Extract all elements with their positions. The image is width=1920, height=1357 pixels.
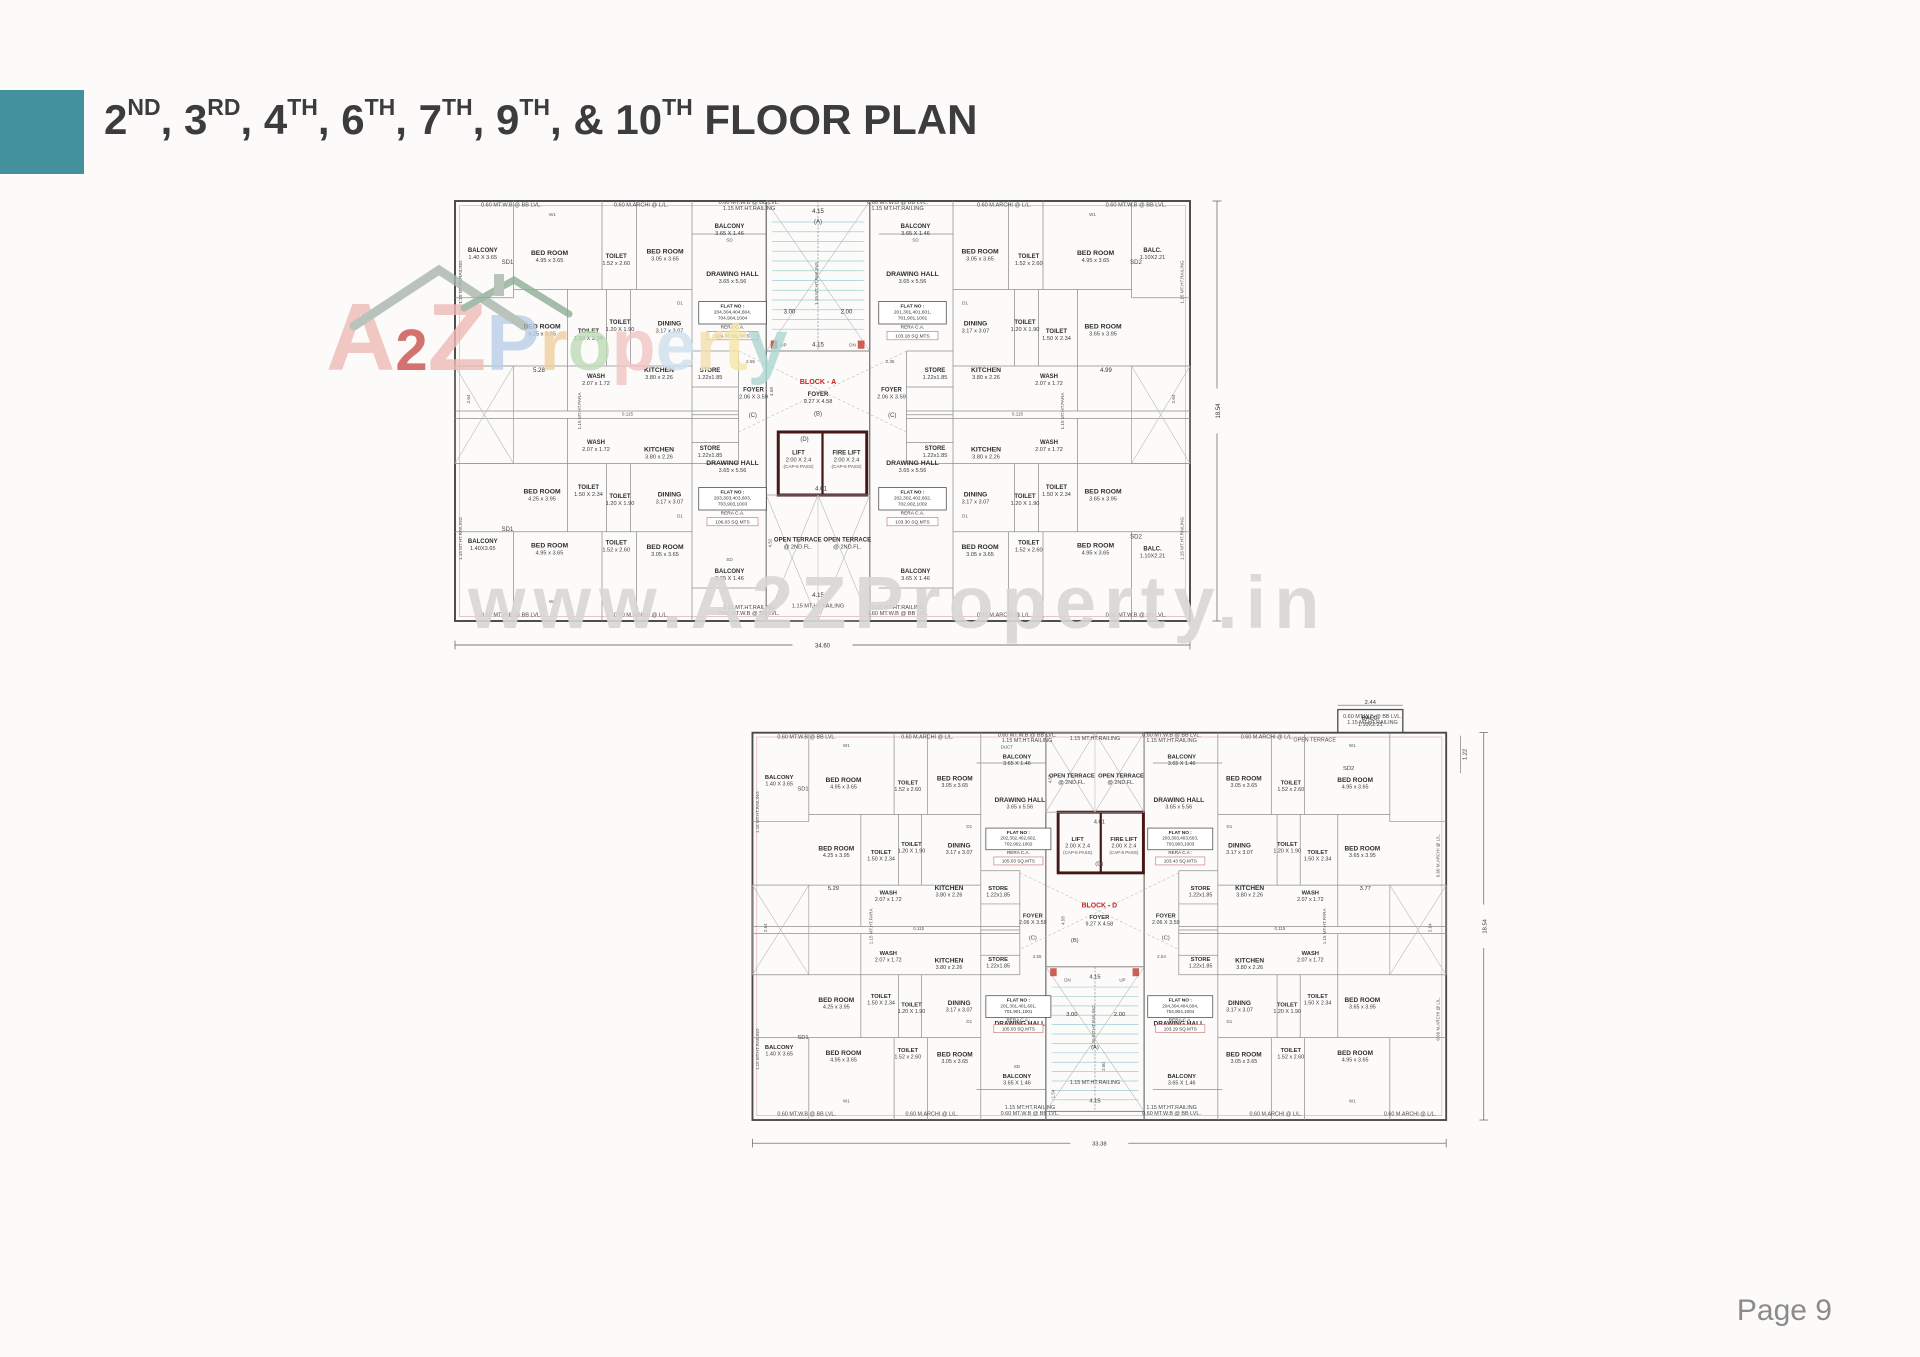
plan-label: 1.15 MT.HT.RAILING: [1091, 1005, 1096, 1047]
plan-label: 1.15 MT.HT.RAILING: [1002, 738, 1052, 744]
plan-label: 1.52 x 2.60: [1015, 547, 1043, 553]
plan-label: TOILET: [1277, 842, 1298, 848]
plan-label: 3.65 X 1.46: [901, 576, 930, 582]
plan-label: 1.50 X 2.34: [574, 336, 603, 342]
plan-label: 701,901,1001: [898, 316, 928, 322]
plan-label: 1.10X2.21: [1358, 722, 1383, 728]
plan-label: RERA C.A.: [901, 511, 925, 517]
plan-label: 3.05 x 3.65: [941, 783, 968, 789]
plan-label: 0.60 M.ARCHI @ L/L.: [977, 202, 1032, 208]
plan-label: 3.00: [784, 310, 796, 316]
plan-label: (C): [749, 413, 757, 419]
plan-label: FOYER: [743, 388, 764, 394]
plan-label: 1.52 x 2.60: [1277, 787, 1304, 793]
plan-label: FIRE LIFT: [1110, 837, 1137, 843]
plan-label: 2.07 x 1.72: [582, 447, 610, 453]
plan-label: DRAWING HALL: [886, 271, 939, 278]
plan-label: BALCONY: [765, 1045, 794, 1051]
plan-label: 3.80 x 2.26: [1236, 893, 1263, 899]
plan-label: 1.20 X 1.90: [898, 1009, 926, 1015]
flat-no-title: FLAT NO :: [900, 490, 924, 496]
plan-label: 3.17 x 3.07: [946, 850, 973, 856]
plan-label: 202,302,402,602,: [1000, 836, 1036, 841]
plan-label: 0.115: [1275, 926, 1286, 931]
plan-label: BALC.: [1143, 248, 1162, 254]
plan-label: 1.20 X 1.90: [898, 849, 926, 855]
plan-label: BALCONY: [1003, 755, 1032, 761]
watermark-letter: A: [326, 290, 395, 386]
plan-label: 3.05 x 3.65: [651, 256, 679, 262]
plan-label: 204,304,404,604,: [1162, 1003, 1198, 1008]
plan-label: BALCONY: [715, 224, 745, 230]
plan-label: TOILET: [1307, 850, 1328, 856]
plan-label: 3.65 x 5.56: [1006, 805, 1033, 811]
plan-label: DINING: [1228, 843, 1251, 850]
plan-label: (C): [1029, 935, 1037, 941]
plan-label: (A): [1091, 1045, 1099, 1051]
plan-label: 1.40X3.65: [470, 546, 496, 552]
plan-label: SD: [1014, 1064, 1021, 1069]
plan-label: BED ROOM: [1084, 489, 1122, 496]
plan-label: DRAWING HALL: [886, 460, 939, 467]
dim-right-top: 1.22: [1462, 749, 1468, 760]
plan-label: 4.95 x 3.65: [1082, 258, 1110, 264]
plan-label: 4.95 x 3.65: [1342, 784, 1369, 790]
plan-label: 4.25 x 3.95: [528, 331, 556, 337]
plan-label: 1.40 X 3.65: [765, 1052, 793, 1058]
plan-label: 1.15 MT.HT.RAILING: [458, 517, 463, 561]
plan-label: 1.52 x 2.60: [1277, 1055, 1304, 1061]
plan-label: DUCT: [1001, 745, 1014, 750]
plan-label: KITCHEN: [644, 367, 674, 374]
plan-label: 1.15 MT.HT.RAILING: [1070, 736, 1120, 742]
plan-label: KITCHEN: [644, 447, 674, 454]
rera-area: 103.43 SQ.MTS: [1164, 859, 1197, 864]
plan-label: WASH: [587, 440, 605, 446]
floor-plan-svg: 2.441.220.60 MT.W.B @ BB LVL.0.60 M.ARCH…: [738, 698, 1504, 1166]
rera-area: 106.03 SQ.MTS: [715, 334, 749, 340]
plan-label: 1.20 X 1.90: [1273, 1009, 1301, 1015]
plan-label: TOILET: [1014, 494, 1036, 500]
dim-right: 18.54: [1483, 918, 1489, 933]
plan-label: 1.22x1.85: [1189, 964, 1213, 970]
plan-label: 1.10X2.21: [1140, 255, 1166, 261]
plan-label: D1: [677, 301, 683, 306]
plan-label: SD2: [1130, 260, 1142, 266]
plan-label: 4.15: [812, 209, 824, 215]
plan-label: 0.60 MT.W.B @ BB LVL.: [481, 613, 542, 619]
plan-label: 2.55: [1033, 954, 1042, 959]
plan-label: 4.15: [1089, 974, 1100, 980]
plan-label: 0.60 MT.W.B @ BB LVL.: [1142, 1111, 1201, 1117]
plan-label: WASH: [1302, 891, 1319, 897]
plan-label: 4.15: [812, 343, 824, 349]
flat-no-title: FLAT NO :: [900, 304, 924, 310]
plan-label: SD1: [502, 260, 514, 266]
plan-label: BALCONY: [1167, 1074, 1196, 1080]
plan-label: @ 2ND.FL.: [833, 544, 862, 550]
plan-label: 2.07 x 1.72: [582, 381, 610, 387]
plan-label: 701,901,1001: [1004, 1009, 1033, 1014]
plan-label: WASH: [1040, 440, 1058, 446]
plan-label: 4.58: [769, 387, 774, 396]
plan-label: OPEN TERRACE: [1049, 773, 1095, 779]
plan-label: STORE: [700, 446, 721, 452]
plan-label: 3.05 x 3.65: [941, 1059, 968, 1065]
plan-label: BED ROOM: [937, 1051, 973, 1058]
red-marker: [771, 341, 778, 349]
plan-label: 1.52 x 2.60: [894, 787, 921, 793]
plan-label: 3.17 x 3.07: [656, 499, 684, 505]
plan-label: 3.80 x 2.26: [645, 454, 673, 460]
plan-label: 1.20 X 1.90: [1273, 849, 1301, 855]
plan-label: SD: [726, 557, 733, 562]
plan-label: BED ROOM: [1077, 250, 1115, 257]
plan-label: 1.54: [1051, 1089, 1056, 1098]
plan-label: 3.65 x 3.95: [1349, 853, 1376, 859]
plan-label: 0.115: [622, 412, 634, 417]
plan-label: TOILET: [1281, 1048, 1302, 1054]
plan-label: 3.77: [1360, 886, 1371, 892]
plan-label: 4.99: [1100, 368, 1112, 374]
plan-label: TOILET: [871, 994, 892, 1000]
plan-label: 3.65 x 5.56: [899, 468, 927, 474]
plan-label: 1.52 x 2.60: [602, 547, 630, 553]
plan-label: OPEN TERRACE: [774, 538, 822, 544]
plan-label: WASH: [587, 374, 605, 380]
plan-label: 1.22x1.85: [1189, 893, 1213, 899]
plan-label: DINING: [658, 321, 682, 328]
plan-label: 0.60 M.ARCHI @ L/L.: [1249, 1112, 1302, 1118]
plan-label: 3.65 x 5.56: [719, 468, 747, 474]
plan-label: 3.17 x 3.07: [1226, 850, 1253, 856]
plan-label: TOILET: [898, 781, 919, 787]
plan-label: KITCHEN: [935, 885, 964, 892]
rera-area: 106.03 SQ.MTS: [715, 520, 749, 526]
plan-label: 1.15 MT.HT.PARA: [1060, 392, 1065, 430]
plan-label: 3.65 X 1.46: [715, 576, 744, 582]
plan-label: (D): [1095, 862, 1103, 868]
plan-label: BALCONY: [765, 775, 794, 781]
plan-label: 1.15 MT.HT.RAILING: [723, 605, 775, 611]
plan-label: 1.20 X 1.90: [1011, 327, 1040, 333]
plan-label: DINING: [948, 1000, 971, 1007]
floor-plan-block-a: 0.60 MT.W.B @ BB LVL.0.60 M.ARCHI @ L/L.…: [440, 186, 1235, 672]
plan-label: TOILET: [606, 541, 628, 547]
plan-label: W1: [843, 743, 850, 748]
plan-label: 4.95 x 3.65: [536, 550, 564, 556]
plan-label: 4.25 x 3.95: [823, 853, 850, 859]
plan-label: (B): [1071, 938, 1079, 944]
dim-bottom: 33.38: [1092, 1141, 1106, 1147]
plan-label: 3.17 x 3.07: [1226, 1008, 1253, 1014]
plan-label: 1.22x1.85: [923, 453, 948, 459]
plan-label: 2.00: [841, 310, 853, 316]
plan-label: TOILET: [1277, 1003, 1298, 1009]
plan-label: UP: [1119, 977, 1125, 982]
plan-label: BALCONY: [1167, 755, 1196, 761]
plan-label: 1.15 MT.HT.RAILING: [1146, 738, 1196, 744]
plan-label: SD: [726, 238, 733, 243]
plan-label: 3.05 x 3.65: [966, 256, 994, 262]
plan-label: TOILET: [871, 850, 892, 856]
plan-label: BED ROOM: [523, 489, 561, 496]
plan-label: TOILET: [1018, 541, 1040, 547]
plan-label: (A): [814, 220, 822, 226]
plan-label: SD1: [797, 786, 808, 792]
plan-label: 2.07 x 1.72: [1297, 958, 1324, 964]
plan-label: 0.60 MT.W.B @ BB LVL.: [777, 734, 836, 740]
plan-label: 2.07 x 1.72: [875, 958, 902, 964]
plan-label: 0.60 M.ARCHI @ L/L.: [1241, 734, 1294, 740]
rera-area: 105.03 SQ.MTS: [1002, 1026, 1035, 1031]
plan-label: WASH: [880, 891, 897, 897]
plan-label: 2.35: [885, 359, 894, 364]
plan-label: BED ROOM: [1084, 324, 1122, 331]
plan-label: BED ROOM: [1226, 1051, 1262, 1058]
plan-label: 3.00: [1066, 1012, 1077, 1018]
plan-label: BALCONY: [1003, 1074, 1032, 1080]
plan-label: 0.60 M.ARCHI @ L/L.: [1436, 834, 1441, 877]
plan-label: W1: [1349, 743, 1356, 748]
plan-label: 1.52 x 2.60: [1015, 261, 1043, 267]
plan-label: STORE: [988, 886, 1008, 892]
plan-label: TOILET: [606, 254, 628, 260]
plan-label: TOILET: [609, 320, 631, 326]
plan-label: BED ROOM: [646, 544, 684, 551]
plan-label: (C): [1162, 935, 1170, 941]
plan-label: 202,302,402,602,: [894, 496, 931, 502]
plan-label: 1.15 MT.HT.RAILING: [1179, 260, 1184, 304]
plan-label: BED ROOM: [531, 543, 569, 550]
plan-label: RERA C.A.: [1007, 850, 1030, 855]
plan-label: 3.65 x 5.56: [1165, 805, 1192, 811]
plan-label: (C): [888, 413, 896, 419]
plan-label: 2.06 X 3.59: [1019, 920, 1047, 926]
rera-area: 103.18 SQ.MTS: [895, 334, 929, 340]
plan-label: 3.17 x 3.07: [962, 328, 990, 334]
plan-label: 201,301,401,601,: [894, 310, 931, 316]
plan-label: 2.07 x 1.72: [1035, 381, 1063, 387]
plan-label: FOYER: [1156, 914, 1177, 920]
plan-label: 1.15 MT.HT.PARA: [577, 392, 582, 430]
plan-label: 2.55: [746, 359, 755, 364]
plan-label: RERA C.A.: [1169, 1018, 1192, 1023]
accent-square: [0, 90, 84, 174]
plan-label: KITCHEN: [1235, 957, 1264, 964]
plan-label: 4.52: [768, 538, 773, 547]
plan-label: W1: [549, 212, 556, 217]
red-marker: [1133, 968, 1140, 976]
plan-label: 3.65 X 1.46: [1003, 1081, 1031, 1087]
plan-label: (CAP-6 PASS): [1063, 850, 1092, 855]
plan-label: OPEN TERRACE: [1293, 737, 1336, 743]
plan-label: 1.15 MT.HT.PARA: [868, 909, 873, 945]
plan-label: RERA C.A.: [721, 325, 745, 331]
plan-label: (CAP-6 PASS): [1109, 850, 1138, 855]
plan-label: 3.65 x 5.56: [899, 279, 927, 285]
plan-label: 3.65 X 1.46: [1168, 761, 1196, 767]
plan-label: 2.00: [1114, 1012, 1125, 1018]
plan-label: 3.65 x 3.95: [1349, 1005, 1376, 1011]
plan-label: 703,903,1003: [718, 502, 748, 508]
plan-label: FOYER: [808, 392, 829, 398]
plan-label: SD1: [502, 527, 514, 533]
plan-label: BED ROOM: [961, 249, 999, 256]
plan-label: 2.00 X 2.4: [1065, 844, 1090, 850]
plan-label: TOILET: [1018, 254, 1040, 260]
dim-bottom: 34.60: [815, 643, 831, 649]
plan-label: 1.10X2.21: [1140, 553, 1166, 559]
plan-label: STORE: [1191, 886, 1211, 892]
plan-label: 1.15 MT.HT.RAILING: [1070, 1080, 1120, 1086]
plan-label: 1.15 MT.HT.RAILING: [814, 262, 819, 306]
plan-label: 3.80 x 2.26: [936, 965, 963, 971]
plan-label: FOYER: [1023, 914, 1044, 920]
plan-label: KITCHEN: [971, 447, 1001, 454]
page-number: Page 9: [1737, 1294, 1832, 1328]
plan-label: BED ROOM: [826, 777, 862, 784]
plan-label: 2.54: [1157, 954, 1166, 959]
plan-label: 3.65 x 3.95: [1089, 496, 1117, 502]
plan-label: DN: [1064, 977, 1070, 982]
plan-label: 0.60 M.ARCHI @ L/L.: [901, 734, 954, 740]
plan-label: 3.65 X 1.46: [715, 231, 744, 237]
plan-label: RERA C.A.: [901, 325, 925, 331]
plan-label: 3.80 x 2.26: [936, 893, 963, 899]
plan-label: 4.95 x 3.65: [830, 1057, 857, 1063]
plan-label: SD1: [797, 1035, 808, 1041]
plan-label: BED ROOM: [1344, 845, 1380, 852]
plan-label: RERA C.A.: [721, 511, 745, 517]
plan-label: 4.95 x 3.65: [1082, 550, 1110, 556]
plan-label: BLOCK - A: [800, 378, 836, 386]
plan-label: 201,301,401,601,: [1000, 1003, 1036, 1008]
plan-label: D1: [1227, 1019, 1233, 1024]
plan-label: 1.50 X 2.34: [1304, 1000, 1332, 1006]
plan-label: 1.50 X 2.34: [867, 1000, 895, 1006]
plan-label: WASH: [1302, 951, 1319, 957]
plan-label: BED ROOM: [818, 997, 854, 1004]
plan-label: 1.50 X 2.34: [1304, 857, 1332, 863]
plan-label: D1: [966, 824, 972, 829]
plan-label: 4.61: [1094, 820, 1105, 826]
plan-label: 3.80 x 2.26: [972, 454, 1000, 460]
plan-label: LIFT: [792, 451, 805, 457]
plan-label: STORE: [988, 957, 1008, 963]
plan-label: W1: [843, 1099, 850, 1104]
plan-label: STORE: [1191, 957, 1211, 963]
plan-label: 2.64: [763, 923, 768, 932]
plan-label: BALCONY: [468, 539, 498, 545]
plan-label: SD2: [1130, 535, 1142, 541]
plan-label: 1.50 X 2.34: [867, 857, 895, 863]
plan-label: 4.95 x 3.65: [1342, 1057, 1369, 1063]
plan-label: KITCHEN: [935, 957, 964, 964]
document-page: 2ND, 3RD, 4TH, 6TH, 7TH, 9TH, & 10TH FLO…: [0, 0, 1920, 1357]
plan-label: 0.60 M.ARCHI @ L/L.: [1384, 1112, 1437, 1118]
red-marker: [858, 341, 865, 349]
plan-label: 1.15 MT.HT.RAILING: [723, 206, 775, 212]
plan-label: WASH: [1040, 374, 1058, 380]
rera-area: 103.30 SQ.MTS: [895, 520, 929, 526]
plan-label: W1: [1089, 212, 1096, 217]
plan-label: W1: [549, 599, 556, 604]
plan-label: DRAWING HALL: [706, 271, 759, 278]
plan-label: 702,902,1002: [1004, 841, 1033, 846]
plan-label: 1.15 MT.HT.RAILING: [755, 1028, 760, 1070]
plan-label: DRAWING HALL: [995, 797, 1046, 804]
plan-label: BALCONY: [901, 224, 931, 230]
plan-label: RERA C.A :: [1168, 850, 1192, 855]
plan-label: 0.60 MT.W.B @ BB LVL.: [481, 202, 542, 208]
plan-label: 1.20 X 1.90: [606, 501, 635, 507]
plan-label: W1: [1349, 1099, 1356, 1104]
plan-label: 2.06 X 3.59: [1152, 920, 1180, 926]
plan-label: FOYER: [1089, 915, 1110, 921]
plan-label: 2.06 X 3.59: [877, 394, 906, 400]
plan-label: 0.115: [913, 926, 924, 931]
plan-label: 2.06 X 3.59: [739, 394, 768, 400]
plan-label: 1.15 MT.HT.RAILING: [458, 260, 463, 304]
plan-label: 0.60 MT.W.B @ BB LVL.: [867, 200, 928, 206]
plan-label: 5.28: [533, 368, 545, 374]
plan-label: BED ROOM: [1344, 997, 1380, 1004]
plan-label: TOILET: [578, 485, 600, 491]
plan-label: BED ROOM: [1337, 1050, 1373, 1057]
plan-label: 1.40 X 3.65: [765, 781, 793, 787]
plan-label: STORE: [700, 368, 721, 374]
plan-label: 704,904,1004: [718, 316, 748, 322]
plan-label: 0.60 MT.W.B @ BB LVL.: [777, 1112, 836, 1118]
plan-label: 3.65 x 3.95: [1089, 331, 1117, 337]
plan-label: TOILET: [1307, 994, 1328, 1000]
plan-label: 1.15 MT.HT.PARA: [1322, 909, 1327, 945]
plan-label: 4.61: [815, 487, 827, 493]
plan-label: BED ROOM: [937, 775, 973, 782]
plan-label: 1.22x1.85: [698, 375, 723, 381]
plan-label: DINING: [964, 492, 988, 499]
plan-label: BED ROOM: [1077, 543, 1115, 550]
plan-label: 2.07 x 1.72: [1035, 447, 1063, 453]
plan-label: STORE: [925, 368, 946, 374]
plan-label: TOILET: [1046, 485, 1068, 491]
plan-label: 1.15 MT.HT.RAILING: [871, 605, 923, 611]
plan-label: 3.17 x 3.07: [946, 1008, 973, 1014]
plan-label: 3.80 x 2.26: [1236, 965, 1263, 971]
plan-label: 3.80 x 2.26: [645, 375, 673, 381]
plan-label: 0.60 MT.W.B @ BB LVL.: [719, 611, 780, 617]
plan-label: 4.58: [1061, 916, 1066, 925]
plan-label: (CAP-6 PASS): [832, 464, 862, 469]
plan-label: DINING: [1228, 1000, 1251, 1007]
plan-label: 1.20 X 1.90: [1011, 501, 1040, 507]
plan-label: 2.00 X 2.4: [1112, 844, 1137, 850]
plan-label: 0.60 MT.W.B @ BB LVL.: [1001, 1111, 1060, 1117]
plan-label: 3.05 x 3.65: [1230, 783, 1257, 789]
plan-label: BED ROOM: [531, 250, 569, 257]
plan-label: 3.80 x 2.26: [972, 375, 1000, 381]
plan-label: 2.00 X 2.4: [786, 457, 812, 463]
plan-label: TOILET: [1014, 320, 1036, 326]
plan-label: SD2: [1343, 766, 1354, 772]
plan-label: BED ROOM: [646, 249, 684, 256]
plan-label: BED ROOM: [826, 1050, 862, 1057]
plan-label: BED ROOM: [961, 544, 999, 551]
plan-label: (D): [800, 437, 808, 443]
page-title: 2ND, 3RD, 4TH, 6TH, 7TH, 9TH, & 10TH FLO…: [104, 96, 977, 144]
plan-label: 1.22x1.85: [698, 453, 723, 459]
